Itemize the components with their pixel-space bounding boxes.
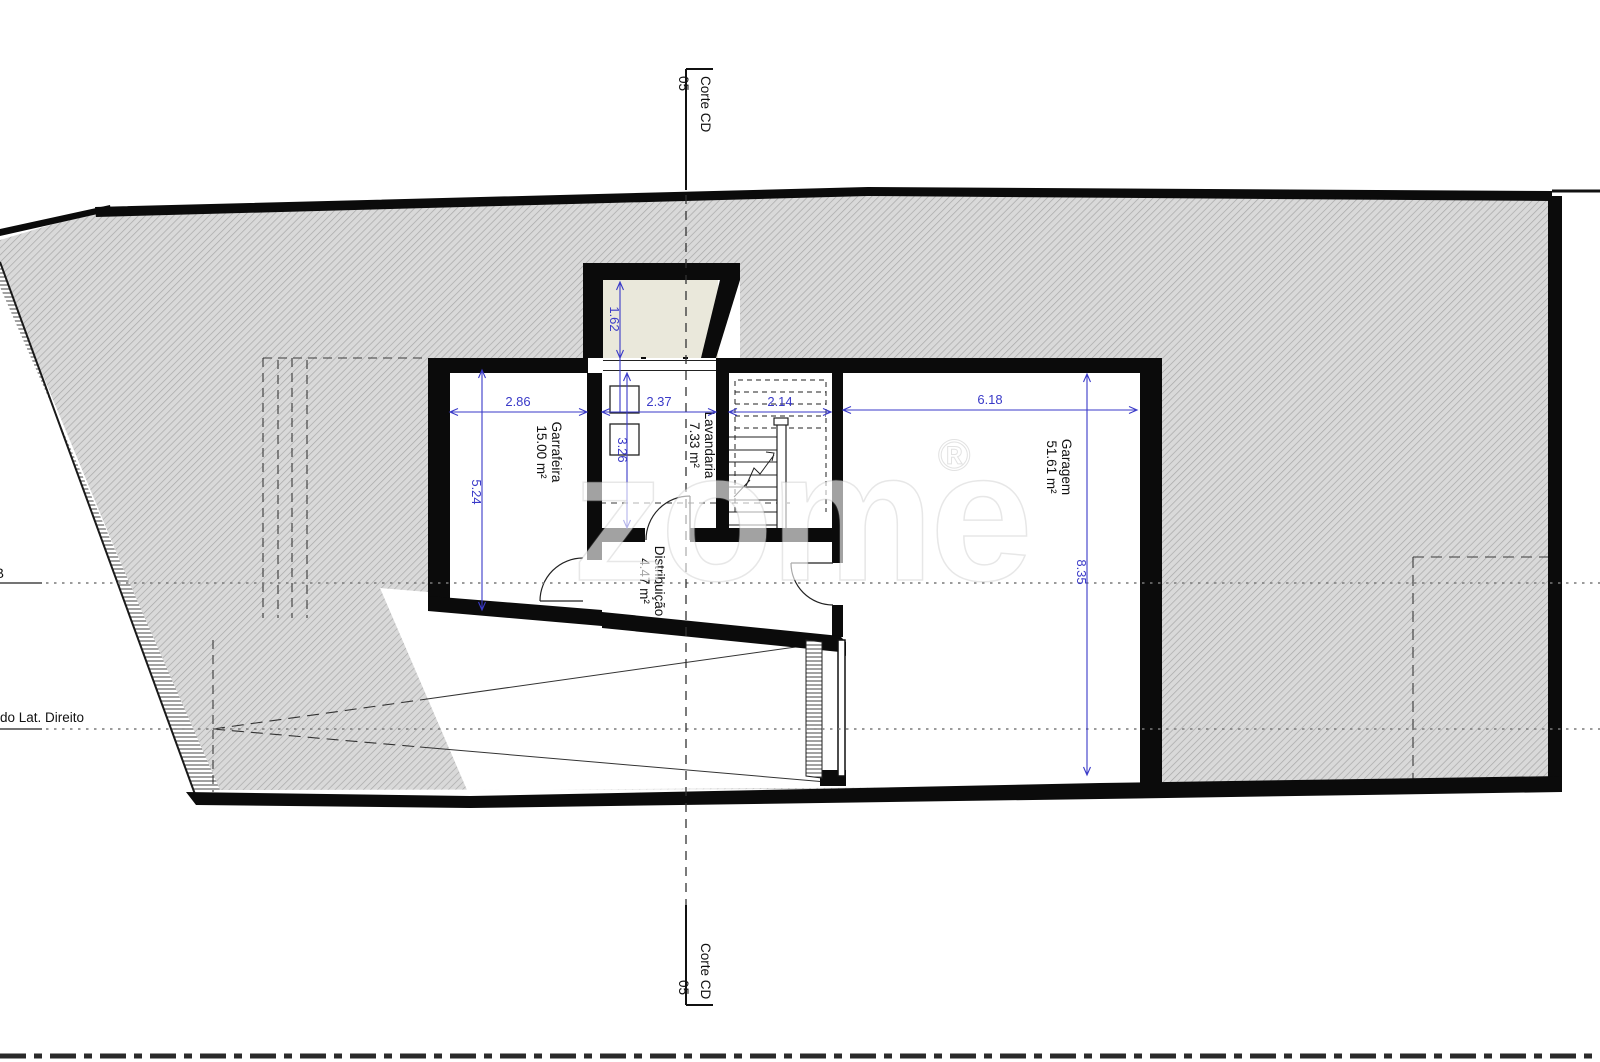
north-wall-west [428, 358, 588, 373]
floor-plan-drawing: B do Lat. Direito Corte CD 05 Corte CD 0… [0, 0, 1600, 1062]
north-wall-east [716, 358, 1140, 373]
ref-label-lat-direito: do Lat. Direito [0, 710, 84, 725]
west-wall [428, 373, 450, 598]
room-label-garrafeira: Garrafeira15.00 m² [534, 422, 564, 483]
lightwell-wall-top [583, 263, 740, 280]
svg-text:8.35: 8.35 [1074, 559, 1089, 584]
section-marker-top-label: Corte CD [698, 76, 713, 133]
garage-sectional-door [838, 640, 845, 776]
svg-text:2.14: 2.14 [767, 394, 792, 409]
svg-text:6.18: 6.18 [977, 392, 1002, 407]
floor-plan-sheet: B do Lat. Direito Corte CD 05 Corte CD 0… [0, 0, 1600, 1062]
room-label-garagem: Garagem51.61 m² [1044, 439, 1074, 495]
garage-drain-grate [806, 640, 822, 778]
svg-text:5.24: 5.24 [469, 479, 484, 504]
garage-east-wall [1140, 358, 1162, 786]
section-marker-bottom-label: Corte CD [698, 943, 713, 1000]
boundary-wall-right [1548, 196, 1562, 788]
ref-label-b: B [0, 566, 4, 581]
washing-machine-1 [610, 386, 639, 413]
watermark: zome ® [572, 414, 1029, 620]
section-marker-bottom-number: 05 [676, 980, 691, 995]
watermark-registered-icon: ® [938, 431, 970, 480]
svg-text:1.62: 1.62 [607, 306, 622, 331]
svg-text:2.37: 2.37 [646, 394, 671, 409]
lightwell-wall-left [583, 280, 603, 358]
section-marker-top-number: 05 [676, 76, 691, 91]
svg-text:2.86: 2.86 [505, 394, 530, 409]
